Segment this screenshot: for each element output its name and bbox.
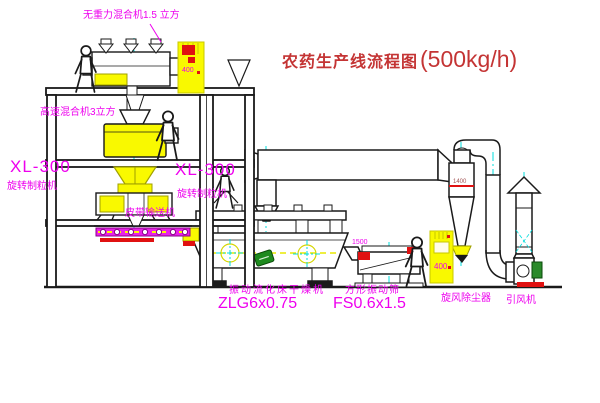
belt-conveyor (94, 226, 192, 242)
cabinet2-code: 400 (434, 263, 447, 271)
induced-draft-fan (506, 258, 534, 284)
drawing-title: 农药生产线流程图 (500kg/h) (282, 46, 517, 73)
label-cyclone: 旋风除尘器 (441, 294, 491, 304)
label-granulator-right-model: XL-300 (175, 161, 236, 178)
cyclone-outlet-cone (455, 255, 468, 263)
cad-drawing-viewport: 农药生产线流程图 (500kg/h) 无重力混合机1.5 立方 高速混合机3立方… (0, 0, 600, 403)
cabinet1-code: 400 (182, 67, 194, 74)
label-zero-gravity-mixer: 无重力混合机1.5 立方 (83, 11, 180, 21)
label-high-speed-mixer: 高速混合机3立方 (40, 108, 116, 118)
label-granulator-left-name: 旋转制粒机 (7, 182, 57, 192)
fan-base-red (517, 282, 544, 287)
drawing-title-capacity: (500kg/h) (420, 46, 517, 73)
label-granulator-right-name: 旋转制粒机 (177, 190, 227, 200)
drawing-title-text: 农药生产线流程图 (282, 48, 418, 72)
label-dryer-model: ZLG6x0.75 (218, 296, 297, 312)
screen-inlet-red (358, 252, 370, 260)
dim-cyclone-band: 1400 (453, 179, 466, 185)
label-belt-conveyor: 皮带输送机 (125, 209, 175, 219)
fluid-bed-dryer (190, 205, 364, 286)
exhaust-stack (508, 177, 540, 258)
dryer-inlet-red (183, 241, 195, 246)
label-fan: 引风机 (506, 296, 536, 306)
label-screen-model: FS0.6x1.5 (333, 296, 406, 312)
dim-screen-1500: 1500 (352, 239, 368, 246)
label-granulator-left-model: XL-300 (10, 158, 71, 175)
cyclone-outlet-yellow (452, 246, 471, 255)
mixer-discharge-funnel (114, 167, 156, 184)
fan-motor (532, 262, 542, 278)
control-cabinet-2 (430, 231, 453, 283)
